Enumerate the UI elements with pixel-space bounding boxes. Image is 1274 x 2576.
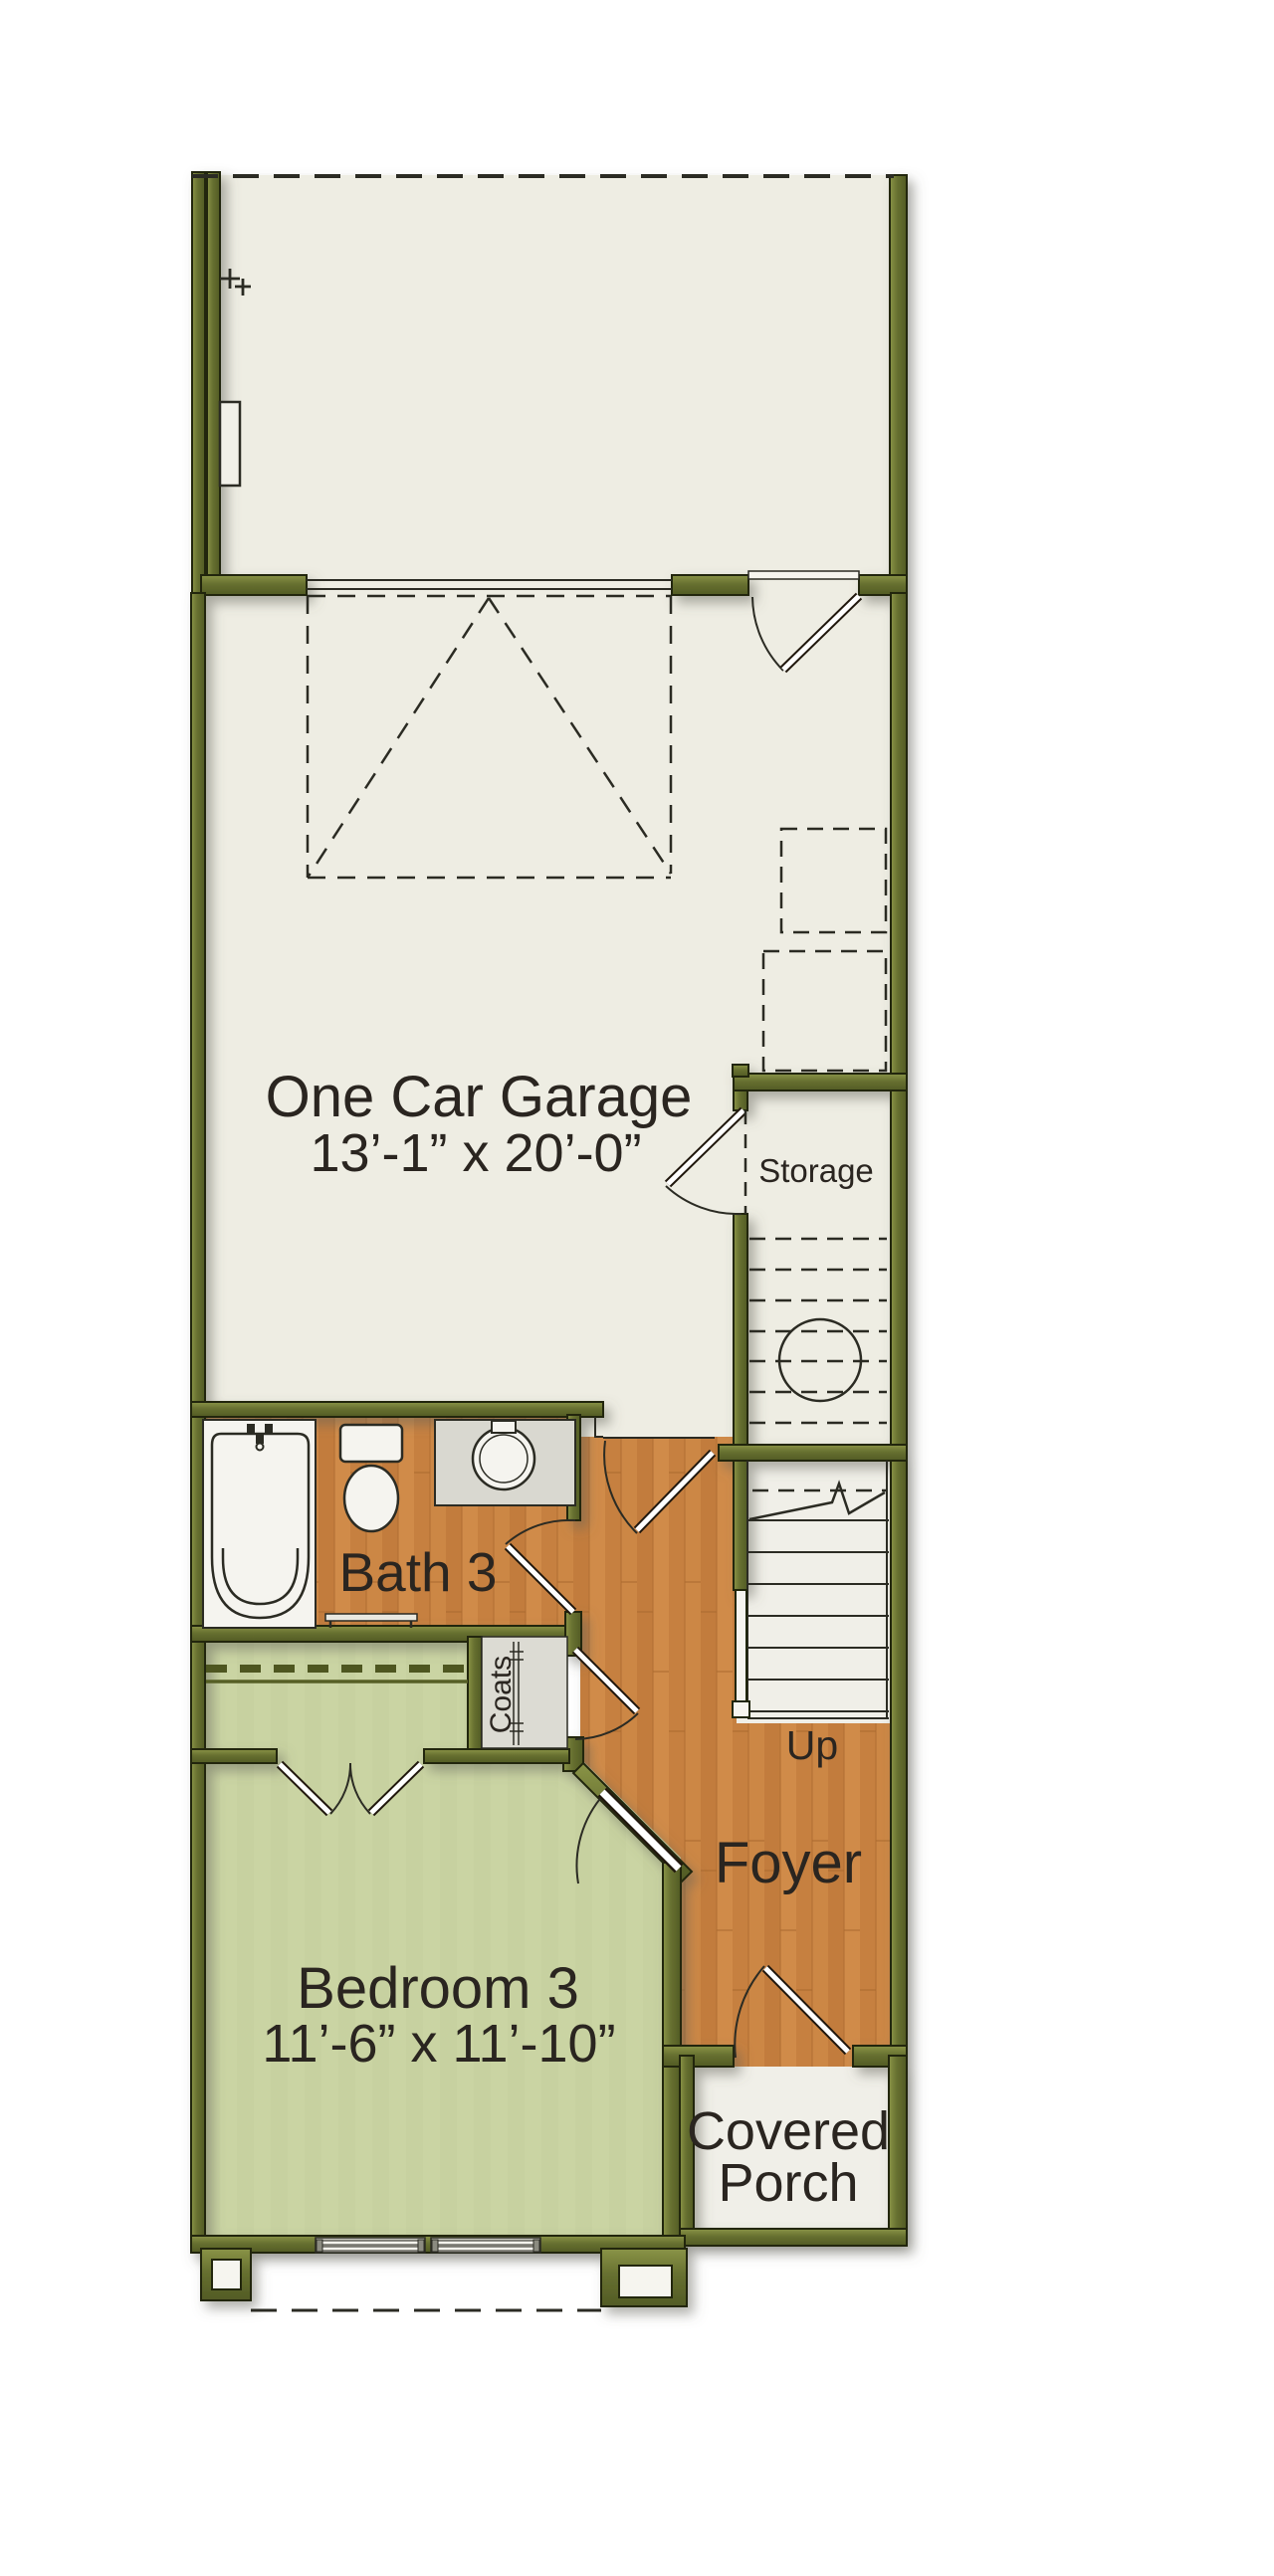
svg-text:Storage: Storage xyxy=(758,1152,874,1189)
svg-text:Coats: Coats xyxy=(485,1656,518,1733)
svg-text:Bedroom 3: Bedroom 3 xyxy=(297,1956,579,2021)
svg-text:Covered: Covered xyxy=(687,2101,890,2161)
svg-text:One Car Garage: One Car Garage xyxy=(266,1065,693,1129)
svg-text:11’-6” x 11’-10”: 11’-6” x 11’-10” xyxy=(262,2014,615,2074)
svg-text:13’-1” x 20’-0”: 13’-1” x 20’-0” xyxy=(310,1123,641,1183)
svg-text:Bath 3: Bath 3 xyxy=(338,1541,497,1603)
svg-text:Foyer: Foyer xyxy=(715,1831,862,1895)
svg-text:Porch: Porch xyxy=(718,2153,858,2213)
svg-text:Up: Up xyxy=(786,1722,838,1768)
